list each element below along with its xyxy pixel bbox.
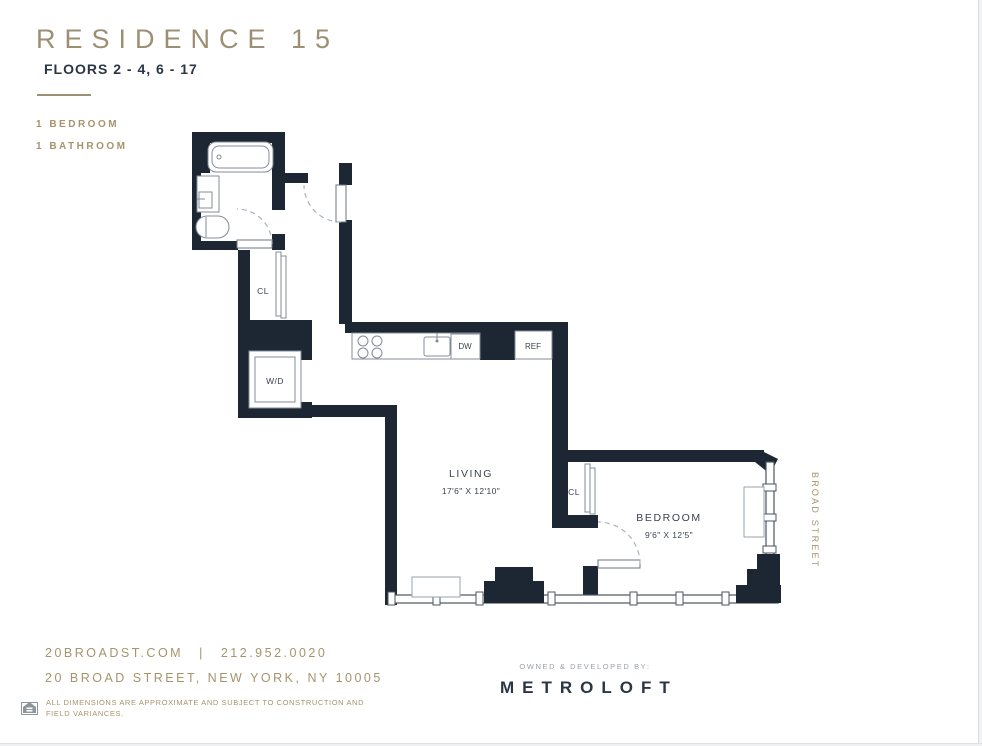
bathroom-vanity: [197, 176, 219, 212]
kitchen-counter: [352, 331, 552, 359]
street-label: BROAD STREET: [810, 472, 820, 568]
developer-block: OWNED & DEVELOPED BY: METROLOFT: [500, 662, 670, 698]
dishwasher-label: DW: [458, 342, 472, 351]
radiator-bedroom: [744, 487, 764, 537]
radiator-living: [412, 577, 460, 597]
equal-housing-icon: [21, 699, 38, 721]
disclaimer-text: ALL DIMENSIONS ARE APPROXIMATE AND SUBJE…: [46, 697, 364, 719]
entry-door: [336, 185, 346, 222]
disclaimer-line1: ALL DIMENSIONS ARE APPROXIMATE AND SUBJE…: [46, 697, 364, 708]
bathtub: [208, 142, 273, 172]
hall-closet-label: CL: [257, 286, 269, 296]
floorplan-page: RESIDENCE 15 FLOORS 2 - 4, 6 - 17 1 BEDR…: [0, 0, 982, 746]
address-line: 20 BROAD STREET, NEW YORK, NY 10005: [45, 671, 383, 685]
bedroom-door: [598, 560, 640, 568]
hall-closet-doors: [276, 252, 286, 318]
living-room-dims: 17'6" X 12'10": [442, 486, 500, 496]
bathroom-door: [237, 240, 272, 248]
refrigerator-label: REF: [525, 342, 541, 351]
phone-link[interactable]: 212.952.0020: [221, 646, 327, 660]
disclaimer-line2: FIELD VARIANCES.: [46, 708, 364, 719]
washer-dryer-label: W/D: [266, 376, 284, 386]
developer-logo: METROLOFT: [500, 678, 670, 698]
bedroom-label: BEDROOM: [636, 512, 701, 524]
bedroom-dims: 9'6" X 12'5": [645, 530, 693, 540]
floorplan-drawing: CL W/D DW REF LIVING 17'6" X 12'10" CL B…: [0, 0, 982, 746]
website-link[interactable]: 20BROADST.COM: [45, 646, 183, 660]
bedroom-closet-doors: [585, 464, 595, 514]
bedroom-closet-label: CL: [568, 487, 580, 497]
living-room-label: LIVING: [449, 468, 493, 480]
developer-label: OWNED & DEVELOPED BY:: [500, 662, 670, 671]
toilet: [196, 216, 229, 238]
page-edge-right: [978, 0, 982, 746]
contact-separator: |: [199, 646, 205, 660]
contact-line: 20BROADST.COM|212.952.0020: [45, 646, 327, 660]
